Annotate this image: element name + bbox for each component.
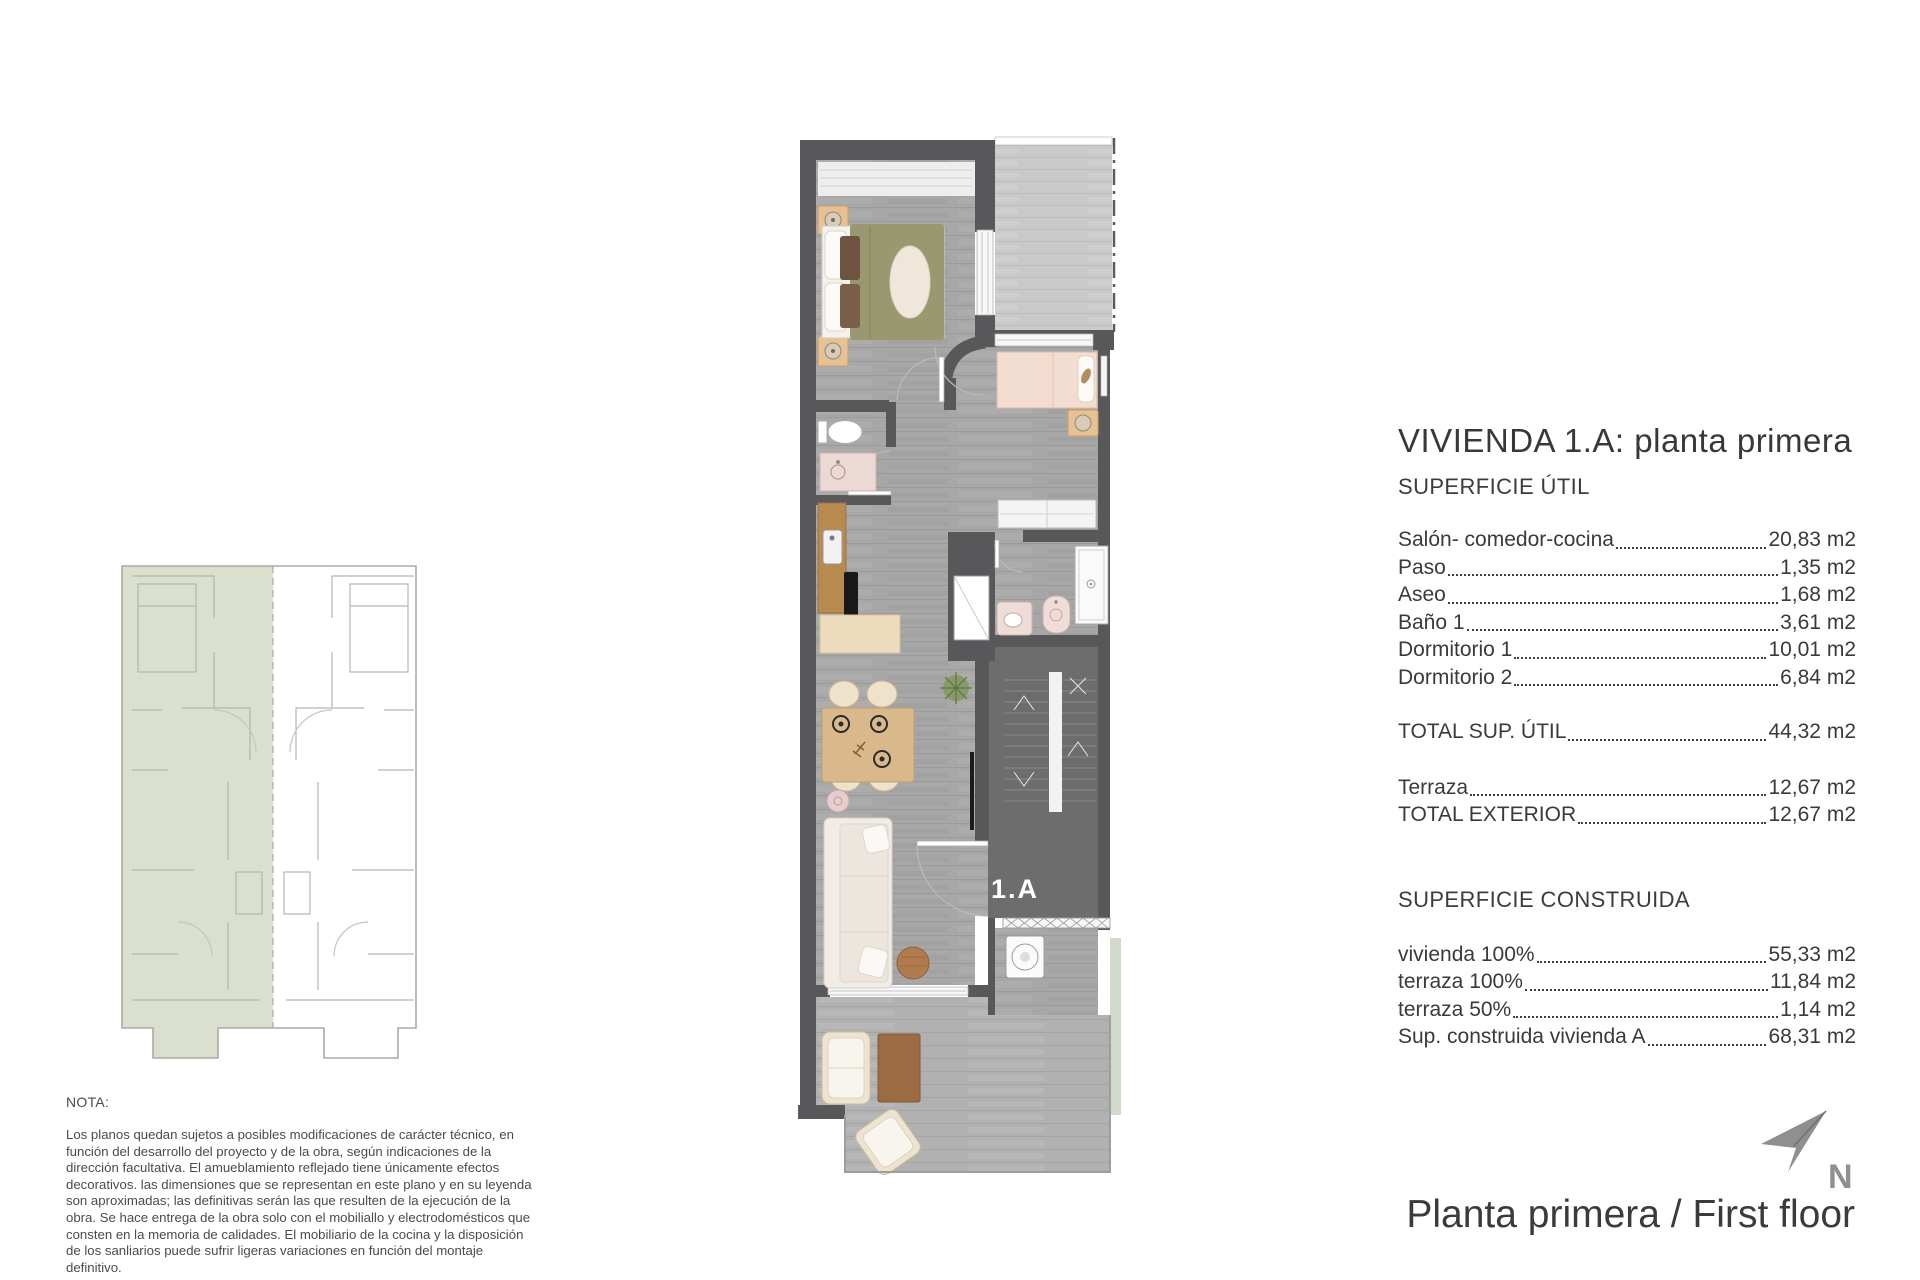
area-row: Paso1,35 m2 [1398,554,1856,582]
area-row: Dormitorio 110,01 m2 [1398,636,1856,664]
north-label: N [1828,1158,1853,1196]
upper-terrace-floor [995,145,1112,330]
area-row: Baño 13,61 m2 [1398,609,1856,637]
upper-terrace-edge [995,137,1112,145]
toilet [828,421,862,444]
floor-title: Planta primera / First floor [1395,1192,1855,1238]
kitchen-sink [823,530,842,564]
utility-room [1006,936,1044,978]
key-plan-highlighted-unit [122,566,273,1058]
note-heading: NOTA: [66,1094,540,1110]
sink-vanity [820,453,876,491]
useful-area-rows: Salón- comedor-cocina20,83 m2 Paso1,35 m… [1398,526,1856,691]
area-row: terraza 50%1,14 m2 [1398,996,1856,1024]
note-body: Los planos quedan sujetos a posibles mod… [66,1127,540,1276]
side-table [827,790,849,812]
page-title: VIVIENDA 1.A: planta primera [1398,420,1856,462]
area-row: TOTAL EXTERIOR12,67 m2 [1398,801,1856,829]
chair [867,681,897,707]
page: NOTA: Los planos quedan sujetos a posibl… [0,0,1920,1280]
total-useful-row: TOTAL SUP. ÚTIL44,32 m2 [1398,718,1856,746]
area-row: Dormitorio 26,84 m2 [1398,664,1856,692]
area-table: VIVIENDA 1.A: planta primera SUPERFICIE … [1398,420,1856,1051]
north-arrow: N [1748,1098,1863,1198]
key-plan [118,560,420,1065]
area-row: Terraza12,67 m2 [1398,774,1856,802]
north-arrow-icon [1761,1111,1826,1172]
outdoor-mat [878,1034,920,1102]
entrance-threshold [1003,918,1110,928]
garden-strip [1110,938,1121,1115]
main-floor-plan: 1.A [798,110,1133,1180]
cooktop [844,572,858,618]
chair [829,681,859,707]
kitchen-island [820,615,900,653]
unit-label: 1.A [991,874,1039,904]
coffee-table [897,947,929,979]
toilet-tank [818,421,827,443]
built-area-rows: vivienda 100%55,33 m2 terraza 100%11,84 … [1398,941,1856,1051]
area-row: vivienda 100%55,33 m2 [1398,941,1856,969]
area-row: Aseo1,68 m2 [1398,581,1856,609]
area-row: terraza 100%11,84 m2 [1398,968,1856,996]
area-row: Sup. construida vivienda A68,31 m2 [1398,1023,1856,1051]
useful-area-heading: SUPERFICIE ÚTIL [1398,474,1856,500]
exterior-rows: Terraza12,67 m2 TOTAL EXTERIOR12,67 m2 [1398,774,1856,829]
note-block: NOTA: Los planos quedan sujetos a posibl… [66,1094,540,1276]
doorway-floor [975,845,988,916]
area-row: Salón- comedor-cocina20,83 m2 [1398,526,1856,554]
built-area-heading: SUPERFICIE CONSTRUIDA [1398,887,1856,913]
tv [970,752,974,830]
